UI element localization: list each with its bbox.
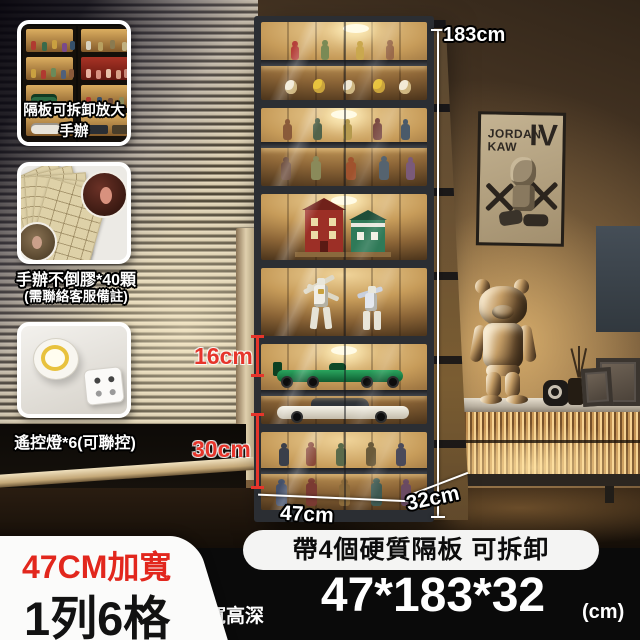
acrylic-reflection: [261, 194, 427, 260]
poster-figure-head: [510, 157, 537, 187]
clock-face: [548, 385, 562, 399]
corner-badge-content: 47CM加寬 1列6格: [0, 536, 196, 640]
shelf-row-red: [81, 57, 128, 80]
bear-foot: [480, 395, 502, 404]
large-compartment-label: 30cm: [192, 436, 251, 463]
large-compartment-measure: [251, 413, 264, 489]
poster-figure-boot: [523, 214, 548, 226]
picture-frame-photo: [587, 373, 607, 400]
dimensions-value: 47*183*32: [288, 568, 578, 623]
shelf-row: [26, 57, 73, 80]
height-measure-line: [437, 30, 439, 518]
remote-control: [83, 366, 125, 406]
poster-figure-body: [512, 185, 534, 211]
inset-remote-light: [17, 322, 131, 418]
bear-muzzle: [492, 305, 514, 319]
figure-dots: [31, 41, 36, 50]
poster-text-kaw: KAW: [487, 139, 517, 154]
bear-leg: [505, 372, 520, 397]
cabinet-module-5: [261, 344, 427, 424]
figure-dots: [86, 41, 91, 50]
acrylic-reflection: [261, 22, 427, 100]
bearbrick-figure: [468, 279, 538, 406]
bear-foot: [506, 395, 528, 404]
inset-glue: [17, 162, 131, 264]
desk-clock: [543, 380, 569, 406]
dimensions-unit: (cm): [582, 601, 624, 624]
wall-panel: [596, 226, 640, 332]
puck-light-ring: [41, 345, 69, 371]
cabinet-module-2: [261, 108, 427, 186]
glue-dot: [100, 187, 112, 204]
corner-badge-panel: 47CM加寬 1列6格: [0, 536, 233, 640]
cabinet-module-4: [261, 268, 427, 336]
display-cabinet: [254, 16, 434, 522]
poster-figure-boot: [498, 209, 523, 226]
glue-zoom-callout: [81, 171, 128, 218]
inset-shelf-demo-caption: 隔板可拆卸放大手辦: [21, 99, 127, 141]
shelf-row: [26, 29, 73, 52]
remote-buttons: [94, 377, 101, 384]
bear-leg: [486, 372, 501, 397]
layout-badge: 1列6格: [24, 580, 170, 640]
product-image: JORDAN KAW IV: [0, 0, 640, 640]
shelf-row: [81, 29, 128, 52]
poster-text-iv: IV: [529, 119, 558, 153]
figure-dots: [31, 69, 36, 78]
acrylic-reflection: [261, 268, 427, 336]
wall-poster: JORDAN KAW IV: [476, 111, 566, 247]
height-label: 183cm: [443, 24, 505, 47]
inset-shelf-demo: 隔板可拆卸放大手辦: [17, 20, 131, 146]
bear-torso: [483, 323, 523, 368]
acrylic-reflection: [261, 108, 427, 186]
inset-remote-caption: 遙控燈*6(可聯控): [0, 429, 150, 453]
small-compartment-label: 16cm: [194, 343, 253, 370]
sideboard-leg: [605, 486, 614, 503]
inset-glue-note: (需聯絡客服備註): [4, 285, 148, 305]
puck-light: [33, 338, 79, 380]
picture-frame: [581, 367, 614, 407]
glue-dot: [32, 236, 42, 249]
acrylic-reflection: [261, 344, 427, 424]
measure-cap: [431, 516, 445, 518]
feature-pill: 帶4個硬質隔板 可拆卸: [243, 530, 599, 570]
glue-zoom-callout: [17, 222, 57, 262]
width-label: 47cm: [279, 502, 334, 529]
figure-dots: [86, 69, 91, 78]
cabinet-module-1: [261, 22, 427, 100]
cabinet-module-3: [261, 194, 427, 260]
